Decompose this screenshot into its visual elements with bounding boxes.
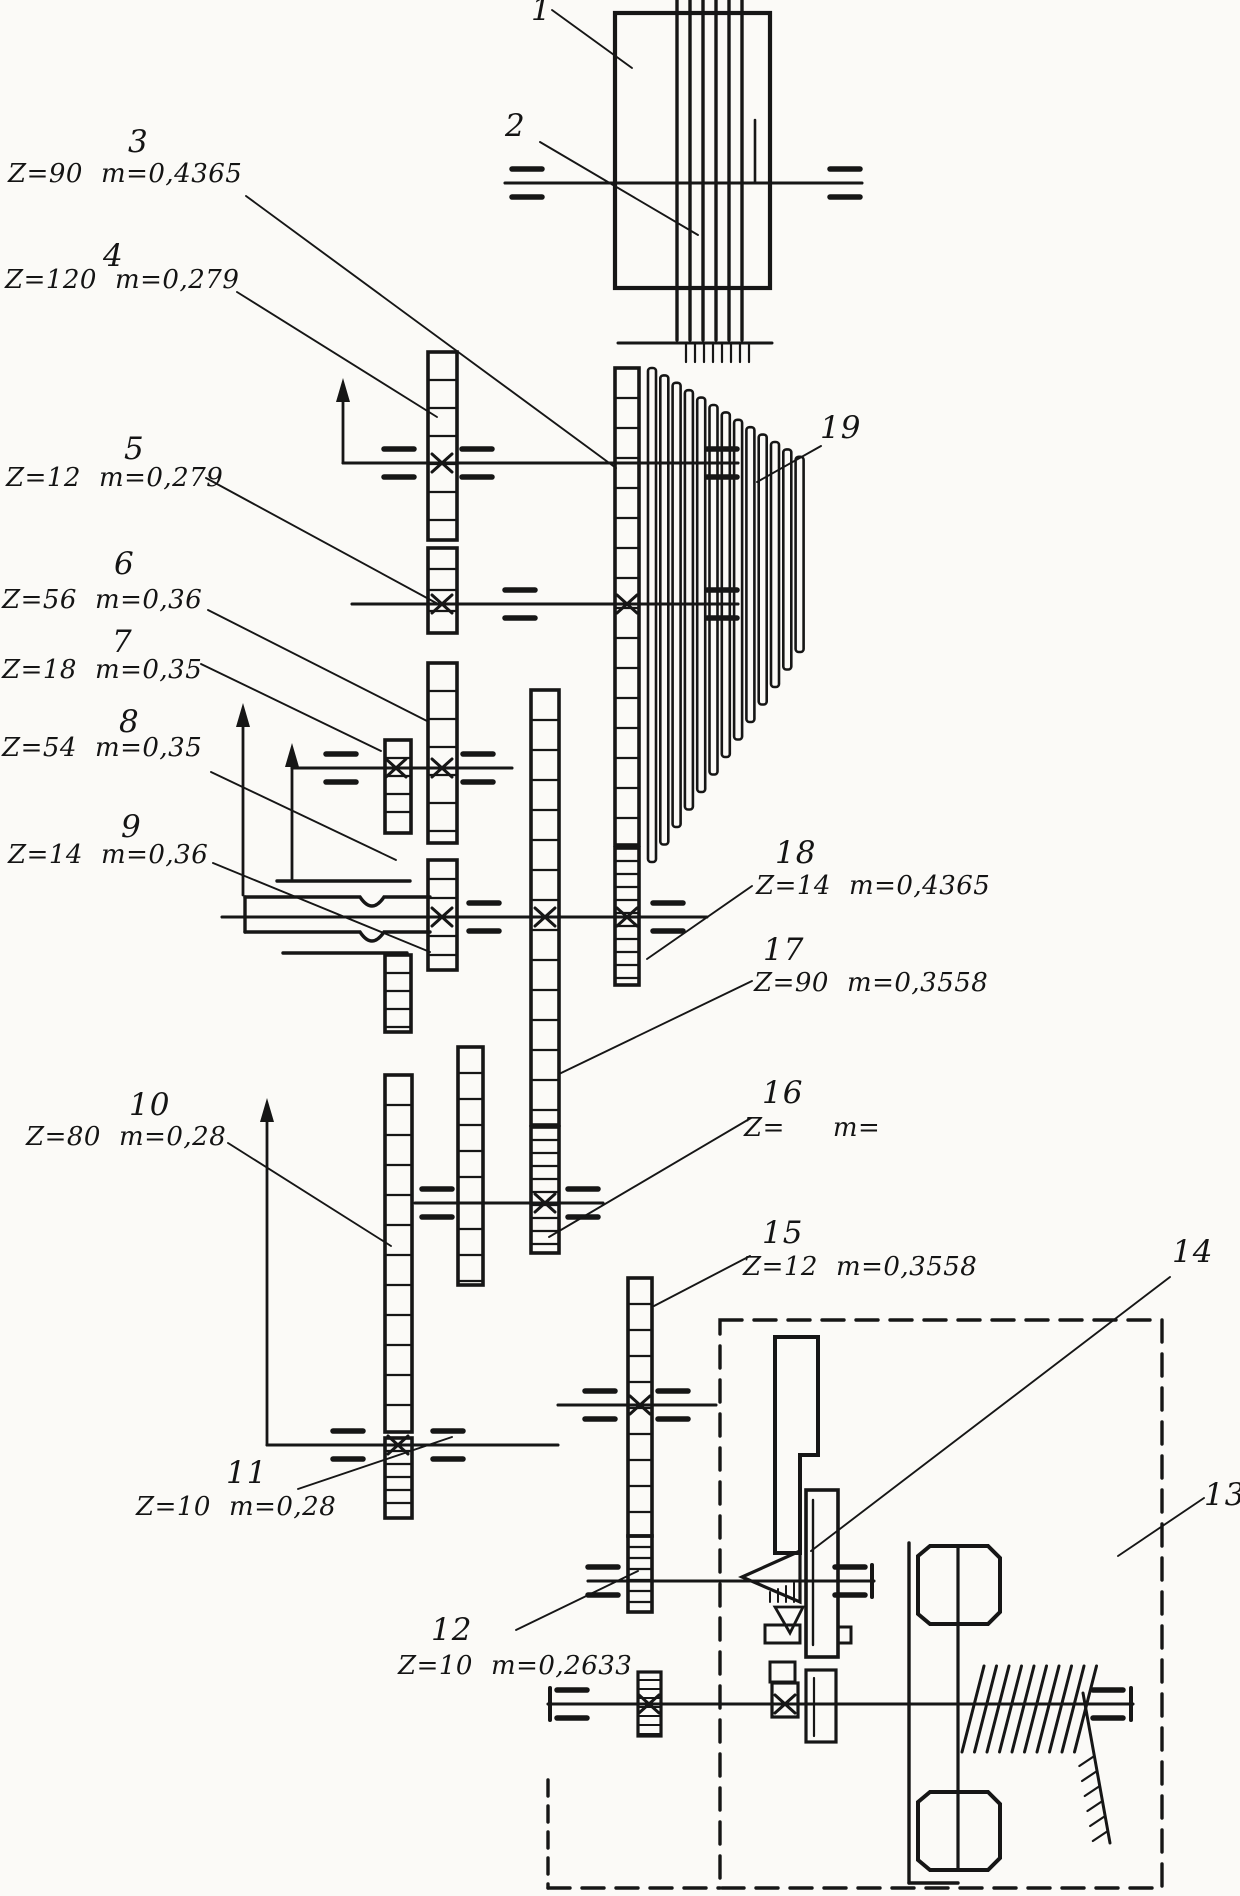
part-number-18: 18 bbox=[775, 835, 816, 871]
part-formula-12: Z=10m=0,2633 bbox=[398, 1651, 632, 1681]
leader-line-18 bbox=[647, 886, 752, 959]
pinion-7-and-wheel-8 bbox=[385, 740, 411, 1032]
part-number-11: 11 bbox=[226, 1455, 267, 1491]
axis-barrel bbox=[505, 169, 862, 197]
leader-line-5 bbox=[206, 478, 438, 604]
gear-4-and-pinion-5 bbox=[428, 352, 457, 970]
part-number-2: 2 bbox=[505, 108, 526, 144]
part-number-6: 6 bbox=[114, 546, 135, 582]
part-number-12: 12 bbox=[431, 1612, 472, 1648]
leader-line-4 bbox=[237, 292, 437, 417]
part-formula-11: Z=10m=0,28 bbox=[136, 1492, 336, 1522]
gear-3-and-pinion-18 bbox=[615, 368, 639, 985]
part-formula-8: Z=54m=0,35 bbox=[2, 733, 202, 763]
leader-line-16 bbox=[549, 1118, 751, 1237]
part-number-1: 1 bbox=[531, 0, 552, 28]
leader-line-1 bbox=[552, 10, 632, 68]
leader-line-10 bbox=[228, 1143, 391, 1246]
part-formula-7: Z=18m=0,35 bbox=[2, 655, 202, 685]
part-formula-3: Z=90m=0,4365 bbox=[8, 159, 242, 189]
contact-pinions bbox=[638, 1670, 836, 1742]
part-formula-9: Z=14m=0,36 bbox=[8, 840, 208, 870]
leader-line-14 bbox=[811, 1277, 1170, 1551]
lever-assembly-14 bbox=[742, 1337, 851, 1682]
spring-barrel bbox=[615, 0, 772, 362]
part-number-3: 3 bbox=[128, 124, 149, 160]
part-formula-16: Z=m= bbox=[744, 1113, 880, 1143]
balance-assembly bbox=[909, 1543, 1000, 1883]
gear-column-e bbox=[458, 1047, 483, 1285]
hairspring bbox=[962, 1666, 1110, 1843]
part-number-15: 15 bbox=[762, 1215, 803, 1251]
leader-line-15 bbox=[654, 1256, 750, 1306]
gear-train-diagram: 1 2 3 4 5 6 7 8 9 10 11 12 13 14 15 16 1… bbox=[0, 0, 1240, 1896]
part-number-5: 5 bbox=[124, 431, 145, 467]
leader-line-7 bbox=[201, 664, 381, 751]
part-formula-15: Z=12m=0,3558 bbox=[743, 1252, 977, 1282]
leader-line-2 bbox=[540, 142, 698, 235]
part-formula-5: Z=12m=0,279 bbox=[6, 463, 223, 493]
gear-17-and-pinion-16 bbox=[531, 690, 559, 1253]
part-number-16: 16 bbox=[762, 1075, 803, 1111]
leader-line-17 bbox=[559, 981, 752, 1074]
part-formula-4: Z=120m=0,279 bbox=[5, 265, 239, 295]
part-formula-6: Z=56m=0,36 bbox=[2, 585, 202, 615]
part-number-19: 19 bbox=[820, 410, 861, 446]
part-number-13: 13 bbox=[1204, 1477, 1240, 1513]
axis-wheel-4 bbox=[343, 449, 738, 477]
part-formula-17: Z=90m=0,3558 bbox=[754, 968, 988, 998]
leader-line-12 bbox=[516, 1571, 638, 1630]
axis-wheel-16 bbox=[415, 1189, 603, 1217]
leader-line-6 bbox=[208, 610, 427, 721]
part-number-14: 14 bbox=[1172, 1234, 1213, 1270]
axis-wheel-15 bbox=[558, 1391, 716, 1419]
gear-cone-19 bbox=[648, 368, 804, 862]
leader-line-8 bbox=[211, 772, 396, 860]
part-number-17: 17 bbox=[763, 932, 804, 968]
part-number-10: 10 bbox=[129, 1087, 170, 1123]
gear-15-and-pinion-12 bbox=[628, 1278, 652, 1612]
part-formula-10: Z=80m=0,28 bbox=[26, 1122, 226, 1152]
part-formula-18: Z=14m=0,4365 bbox=[756, 871, 990, 901]
